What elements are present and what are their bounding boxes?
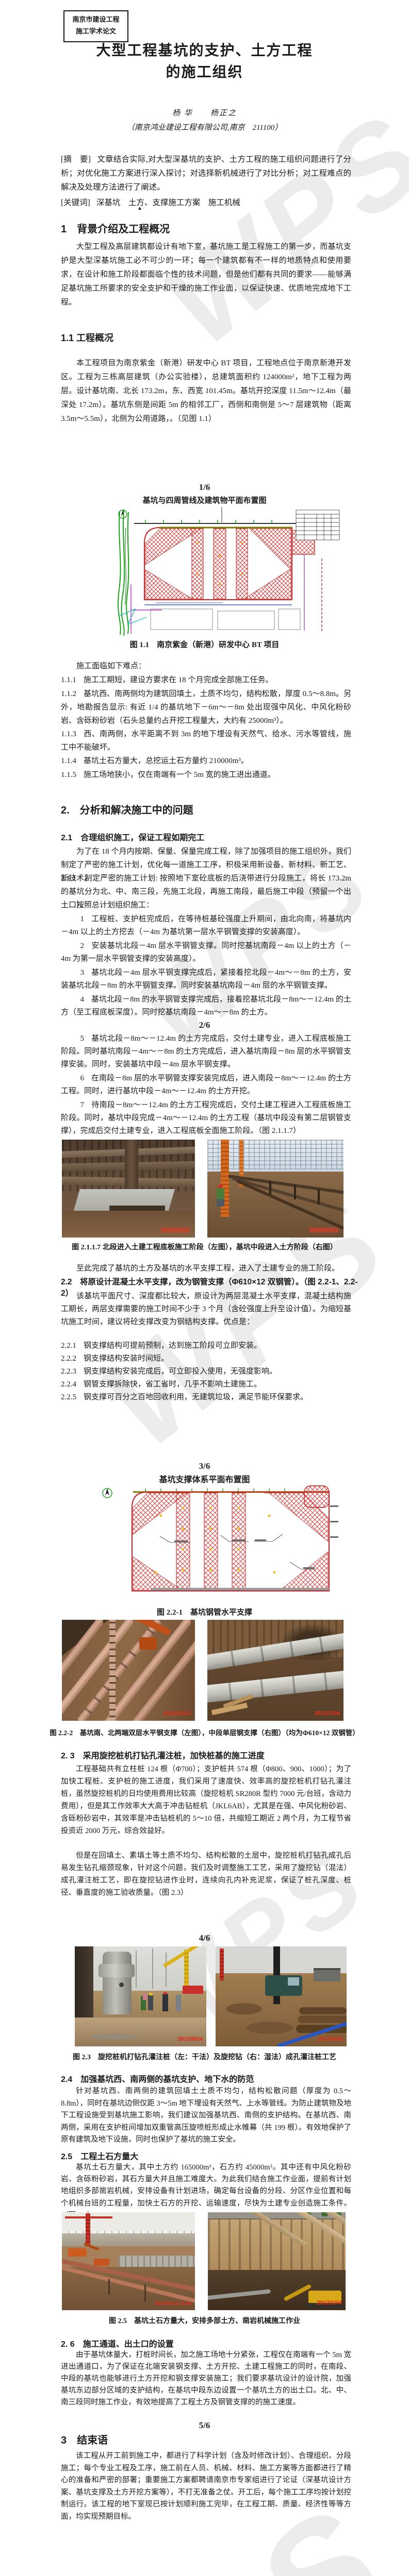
drill-casing (103, 1952, 132, 2014)
puddle (90, 2034, 137, 2039)
page-marker-3: 3/6 (0, 1461, 409, 1471)
item-number: 1.1.5 (61, 771, 76, 779)
difficulties-lead: 施工面临如下难点： (61, 659, 351, 673)
paragraph-s3: 该工程从开工前到施工中，都进行了科学计划（含及时修改计划）、合理组织、分段施工；… (61, 2450, 351, 2523)
heading-s2-6: 2. 6 施工通道、出土口的设置 (61, 2337, 360, 2349)
list-item: 2.2.3钢支撑结构安装完成后，可立即投入使用，无强度影响。 (61, 1365, 351, 1378)
page-marker-5: 5/6 (0, 2420, 409, 2431)
treeline (62, 2233, 195, 2246)
rig-cab-window (288, 1977, 299, 1986)
crane-lattice (220, 1948, 224, 1980)
item-number: 2.2.5 (61, 1393, 76, 1401)
journal-badge: 南京市建设工程 施工学术论文 (63, 10, 128, 42)
step-number: 5 (80, 1035, 85, 1043)
step-number: 6 (80, 1074, 85, 1082)
king-post (318, 1189, 320, 1205)
step-number: 4 (80, 995, 85, 1004)
king-post (294, 1185, 296, 1199)
fig23-caption: 图 2.3 旋挖桩机打钻孔灌注桩（左：干法）及旋挖钻（右：湿法）成孔灌注桩工艺 (0, 2052, 409, 2062)
crane-mast (184, 1950, 189, 1991)
fig221-caption: 图 2.2-1 基坑钢管水平支撑 (0, 1606, 409, 1617)
pipe-support (108, 2279, 110, 2295)
affiliation: （南京鸿业建设工程有限公司,南京 211100） (0, 122, 409, 132)
fig25-caption: 图 2.5 基坑土石方量大，安排多部土方、凿岩机械施工作业 (0, 2315, 409, 2326)
photo-fig2117-right (207, 1140, 343, 1238)
list-item: 1.1.5施工场地狭小，仅在南端有一个 5m 宽的施工进出通道。 (61, 768, 351, 782)
photo-fig23-left: 2012/8/24 (75, 1946, 206, 2046)
rig-mast-dark (75, 1946, 93, 2025)
photo-fig23-right: 2012/6/29 (216, 1946, 347, 2046)
paragraph-s2-2: 该基坑平面尺寸、深度都比较大，原设计为两层混凝土水平支撑，混凝土结构施工期长，两… (61, 1290, 351, 1329)
badge-line2: 施工学术论文 (64, 25, 127, 37)
keywords: [关键词]深基坑 土方、支撑施工方案 施工机械 (61, 196, 351, 210)
step-number: 7 (80, 1101, 85, 1109)
fig11-cad-drawing (114, 507, 343, 637)
worker-figure (162, 1994, 168, 2011)
paragraph-s2-3b: 但是在回填土、素填土等土质不均匀、结构松散的土层中，旋挖桩机打钻孔成孔后易发生钻… (61, 1850, 351, 1899)
abstract-label: [摘 要] (61, 155, 91, 164)
step-number: 2 (80, 942, 85, 950)
list-item: 1.1.2基坑西、南两侧均为建筑回填土，土质不均匀，结构松散，厚度 0.5～8.… (61, 687, 351, 727)
photo-fig25-left: 2012/12/12 13:46 (62, 2212, 195, 2310)
item-number: 2.2.3 (61, 1367, 76, 1376)
casing-hole (119, 1982, 124, 1987)
safety-helmet (149, 1993, 153, 1995)
photo-fig25-right: 2012/10/4 (208, 2212, 346, 2310)
page-marker-4: 4/6 (0, 1933, 409, 1943)
item-text: 钢支撑可百分之百地回收利用，无建筑垃圾，满足节能环保要求。 (84, 1393, 308, 1401)
abstract-text: 文章结合实际,对大型深基坑的支护、土方工程的施工组织问题进行了分析；对优化施工方… (61, 155, 351, 192)
item-number: 1.1.3 (61, 730, 76, 738)
paragraph-s2-6: 由于基坑体量大，打桩时间长，加之施工场地十分紧张，工程仅在南端有一个 5m 宽进… (61, 2349, 351, 2409)
fig221-drawing-title: 基坑支撑体系平面布置图 (0, 1472, 409, 1485)
paragraph-transition: 至此完成了基坑的土方及基坑的水平支撑工程，进入了土建专业的施工阶段。 (61, 1262, 351, 1275)
photo-fig222-left: 2012/11/17 (62, 1620, 195, 1721)
mast-lines (166, 1953, 167, 1987)
plan-step: 4基坑北段－8m 的水平钢管支撑完成后，接着挖基坑北段－8m～－12.4m 的土… (61, 993, 351, 1019)
paragraph-s2-4: 针对基坑西、南两侧的建筑回填土土质不均匀，结构松散问题（厚度为 0.5～8.8m… (61, 2086, 351, 2146)
mud-blob (226, 2003, 262, 2014)
fig2117-caption: 图 2.1.1.7 北段进入土建工程底板施工阶段（左图），基坑中段进入土方阶段（… (0, 1242, 409, 1252)
fig11-caption: 图 1.1 南京紫金（新港）研发中心 BT 项目 (0, 639, 409, 650)
item-text: 西、南两侧，水平距离不到 3m 的地下埋设有天然气、给水、污水等管线，施工中不能… (61, 730, 351, 752)
page-marker-1: 1/6 (0, 482, 409, 493)
worker-figure (217, 1188, 224, 1207)
pipeline-table (296, 510, 339, 540)
sky (62, 2212, 195, 2233)
shed (314, 1968, 340, 1981)
casing-collar (99, 1964, 135, 1977)
paragraph-s1: 大型工程及高层建筑都设计有地下室，基坑施工是工程施工的第一步，而基坑支护是大型深… (61, 240, 351, 310)
fig222-caption: 图 2.2-2 基坑南、北两端双层水平钢支撑（左图），中段单层钢支撑（右图）（均… (21, 1727, 388, 1737)
date-stamp-illegible (309, 1228, 338, 1232)
date-stamp: 2013/1/26 (315, 1710, 340, 1717)
tower-crane-jib (65, 2216, 112, 2218)
fig221-cad-drawing (99, 1485, 345, 1593)
item-text: 钢支撑结构安装完成后，可立即投入使用，无强度影响。 (84, 1367, 277, 1376)
heading-s1: 1 背景介绍及工程概况 (61, 221, 360, 235)
item-number: 2.2.2 (61, 1354, 76, 1363)
list-item: 1.1.1施工工期短，建设方要求在 18 个月完成全部施工任务。 (61, 673, 351, 687)
item-text: 施工工期短，建设方要求在 18 个月完成全部施工任务。 (84, 676, 273, 684)
item-number: 2.2.4 (61, 1380, 76, 1388)
badge-line1: 南京市建设工程 (64, 13, 127, 25)
item-text: 基坑土石方量大，总挖运土石方量约 210000m³。 (84, 757, 249, 765)
plan-step: 5基坑北段－8m～－12.4m 的土方完成后，交付土建专业，进入工程底板施工阶段… (61, 1032, 351, 1071)
north-arrow-icon (103, 1488, 112, 1498)
worker-figure (176, 1995, 181, 2011)
heading-s2-3: 2. 3 采用旋挖桩机打钻孔灌注桩，加快桩基的施工进度 (61, 1749, 360, 1761)
item-text: 施工场地狭小，仅在南端有一个 5m 宽的施工进出通道。 (84, 771, 275, 779)
list-item: 1.1.3西、南两侧，水平距离不到 3m 的地下埋设有天然气、给水、污水等管线，… (61, 727, 351, 754)
excavator (94, 2259, 109, 2266)
item-number: 1.1.2 (61, 690, 76, 698)
document-page: WPS WPS WPS WPS WPS 南京市建设工程 施工学术论文 大型工程基… (0, 0, 409, 2576)
heading-s2: 2. 分析和解决施工中的问题 (61, 802, 360, 817)
list-item: 2.2.4钢管支撑拆除快，省工省时，几乎不影响土建施工。 (61, 1378, 351, 1391)
date-stamp: 2012/12/12 13:46 (155, 2301, 191, 2306)
item-text: 钢支撑结构安装时间短。 (84, 1354, 169, 1363)
paper-title-line1: 大型工程基坑的支护、土方工程 (0, 39, 409, 60)
paragraph-s1-1: 本工程项目为南京紫金（新港）研发中心 BT 项目，工程地点位于南京新港开发区。工… (61, 357, 351, 426)
keywords-label: [关键词] (61, 198, 90, 207)
abstract: [摘 要]文章结合实际,对大型深基坑的支护、土方工程的施工组织问题进行了分析；对… (61, 152, 351, 194)
heading-s2-1: 2.1 合理组织施工，保证工程如期完工 (61, 831, 360, 843)
plan-lead: 按照总计划组织施工： (61, 899, 351, 912)
heading-s2-4: 2.4 加强基坑西、南两侧的基坑支护、地下水的防范 (61, 2072, 360, 2084)
step-text: 基坑北段－8m 的水平钢管支撑完成后，接着挖基坑北段－8m～－12.4m 的土方… (61, 995, 351, 1016)
worker-figure (148, 1995, 153, 2010)
item-number: 2.2.1 (61, 1342, 76, 1350)
step-text: 待南段－8m～－12.4m 的土方工程完成后，交付土建工程进入工程底板施工阶段。… (61, 1101, 351, 1135)
truck (183, 1986, 203, 1994)
step-text: 基坑北段－8m～－12.4m 的土方完成后，交付土建专业，进入工程底板施工阶段。… (61, 1035, 351, 1069)
keywords-text: 深基坑 土方、支撑施工方案 施工机械 (96, 198, 240, 207)
mast-lines (152, 1948, 153, 1989)
excavator (68, 2248, 87, 2257)
dirt-foreground (62, 1211, 195, 1238)
heading-s3: 3 结束语 (61, 2432, 360, 2447)
heading-s1-1: 1.1 工程概况 (61, 331, 360, 344)
page-marker-2: 2/6 (0, 1020, 409, 1030)
date-stamp: 2012/8/24 (177, 2036, 203, 2042)
photo-fig2117-left (62, 1140, 195, 1238)
item-number: 1.1.4 (61, 757, 76, 765)
date-stamp-illegible (161, 1228, 190, 1232)
mud-blob (247, 2022, 293, 2034)
mast-lines (136, 1951, 137, 1988)
spoil-pile (299, 2007, 347, 2014)
fence (62, 2231, 195, 2233)
plan-step: 7待南段－8m～－12.4m 的土方工程完成后，交付土建工程进入工程底板施工阶段… (61, 1099, 351, 1138)
fig11-drawing-title: 基坑与四周管线及建筑物平面布置图 (0, 495, 409, 505)
spoil-pile (298, 2015, 347, 2023)
plan-step: 3基坑北段－4m 层水平钢支撑完成后，紧接着挖北段－4m～－8m 的土方，安装基… (61, 967, 351, 992)
date-stamp: 2012/11/17 (163, 1710, 191, 1717)
step-number: 1 (80, 915, 85, 923)
item-text: 基坑西、南两侧均为建筑回填土，土质不均匀，结构松散，厚度 0.5～8.8m。另外… (61, 690, 351, 725)
heading-s2-5: 2.5 工程土石方量大 (61, 2149, 360, 2162)
plan-step: 6在南段－8m 层的水平钢管支撑安装完成后，进入南段－8m～－12.4m 的土方… (61, 1072, 351, 1098)
safety-helmet (218, 1184, 223, 1188)
step-number: 3 (80, 969, 85, 977)
plan-step: 2安装基坑北段－4m 层水平钢管支撑。同时挖基坑南段－4m 以上的土方（－4m … (61, 940, 351, 965)
item-text: 钢管支撑拆除快，省工省时，几乎不影响土建施工。 (84, 1380, 261, 1388)
plan-step: 1工程桩、支护桩完成后，在等待桩基砼强度上升期间，由北向南，将基坑内－4m 以上… (61, 913, 351, 939)
date-stamp: 2012/6/29 (318, 2036, 343, 2042)
step-text: 基坑北段－4m 层水平钢支撑完成后，紧接着挖北段－4m～－8m 的土方，安装基坑… (61, 969, 351, 990)
step-text: 安装基坑北段－4m 层水平钢管支撑。同时挖基坑南段－4m 以上的土方（－4m 为… (61, 942, 351, 963)
pipe-support (144, 2284, 146, 2302)
safety-helmet (163, 1992, 167, 1994)
list-item: 1.1.4基坑土石方量大，总挖运土石方量约 210000m³。 (61, 754, 351, 768)
cursor-caret-icon: ▲ (137, 206, 142, 211)
list-item: 2.2.2钢支撑结构安装时间短。 (61, 1352, 351, 1365)
date-stamp: 2012/10/4 (317, 2300, 342, 2306)
paper-title-line2: 的施工组织 (0, 61, 409, 81)
worker-figure-pink (143, 1994, 146, 2000)
authors: 杨 华 杨正之 (0, 107, 409, 118)
step-text: 在南段－8m 层的水平钢管支撑安装完成后，进入南段－8m～－12.4m 的土方工… (61, 1074, 351, 1095)
step-text: 工程桩、支护桩完成后，在等待桩基砼强度上升期间，由北向南，将基坑内－4m 以上的… (61, 915, 351, 936)
excavator-body (139, 1637, 157, 1650)
ladder (109, 1620, 116, 1721)
king-post (269, 1181, 271, 1194)
item-text: 钢支撑结构可提前预制，达到施工阶段可立即安装。 (84, 1342, 261, 1350)
list-item: 2.2.1钢支撑结构可提前预制，达到施工阶段可立即安装。 (61, 1340, 351, 1352)
item-number: 1.1.1 (61, 676, 76, 684)
photo-fig222-right: 2013/1/26 (207, 1620, 343, 1721)
list-item: 2.2.5钢支撑可百分之百地回收利用，无建筑垃圾，满足节能环保要求。 (61, 1391, 351, 1404)
paragraph-s2-3a: 工程基础共有立柱桩 124 根（Φ700）；支护桩共 574 根（Φ800、90… (61, 1763, 351, 1837)
